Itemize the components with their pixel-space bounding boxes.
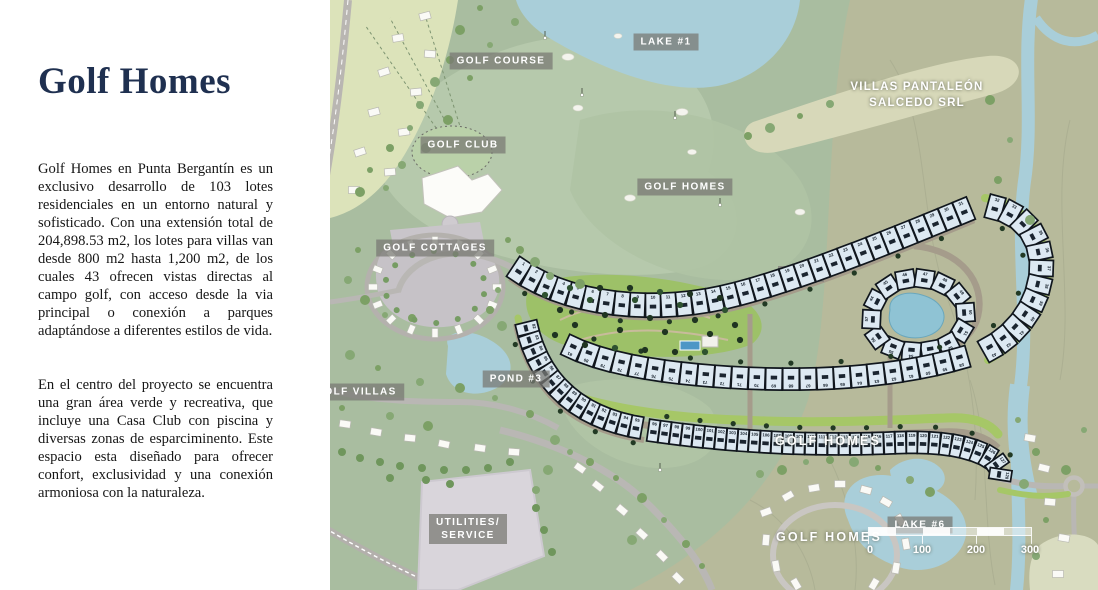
map-label-utilities: UTILITIES/SERVICE [429, 514, 507, 544]
scale-tick-0: 0 [867, 544, 873, 556]
map-label-golf-course: GOLF COURSE [450, 53, 553, 70]
scale-tick-200: 200 [967, 544, 985, 556]
map-label-golf-club: GOLF CLUB [421, 137, 506, 154]
map-label-villas-pantaleon: VILLAS PANTALEÓNSALCEDO SRL [843, 77, 990, 113]
scale-bar-segments [868, 527, 1032, 536]
scale-bar-ticks: 0 100 200 300 [868, 544, 1032, 560]
map-label-lake-1: LAKE #1 [634, 34, 699, 51]
amenities-paragraph: En el centro del proyecto se encuentra u… [38, 376, 273, 502]
map-labels: GOLF COURSELAKE #1VILLAS PANTALEÓNSALCED… [330, 0, 1098, 590]
map-label-golf-villas: GOLF VILLAS [330, 384, 404, 401]
scale-tick-100: 100 [913, 544, 931, 556]
map-label-golf-cottages: GOLF COTTAGES [376, 240, 494, 257]
map-label-golf-homes-mid: GOLF HOMES [768, 431, 888, 451]
master-plan-map: LAKE 12345678910111213141516171819202122… [330, 0, 1098, 590]
scale-bar: 0 100 200 300 [868, 527, 1032, 560]
text-panel: Golf Homes Golf Homes en Punta Bergantín… [0, 0, 330, 590]
map-label-pond-3: POND #3 [483, 371, 550, 388]
intro-paragraph: Golf Homes en Punta Bergantín es un excl… [38, 160, 273, 340]
page-title: Golf Homes [38, 60, 231, 103]
map-label-golf-homes-top: GOLF HOMES [637, 179, 732, 196]
scale-tick-300: 300 [1021, 544, 1039, 556]
